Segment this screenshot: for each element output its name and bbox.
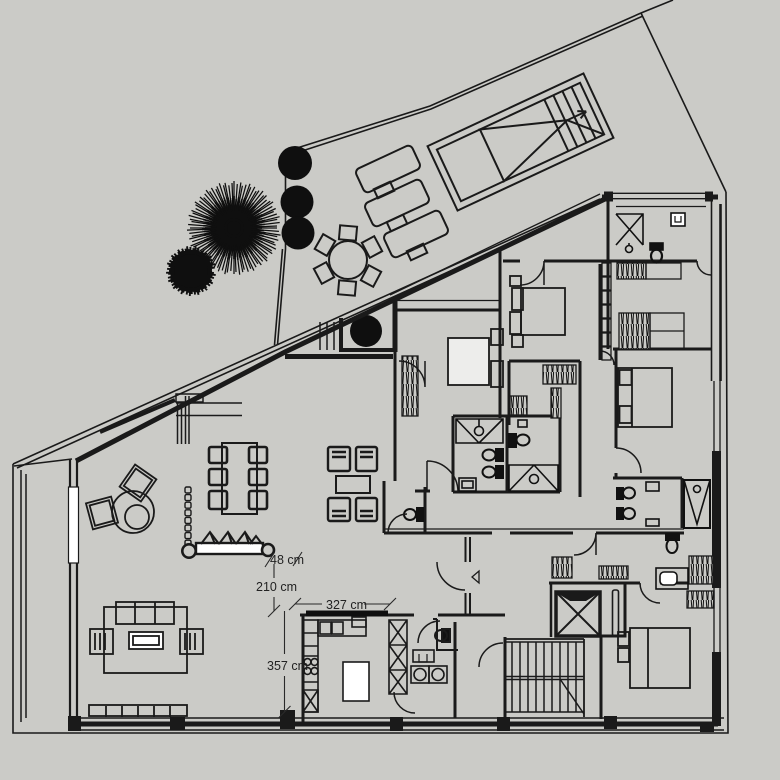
svg-text:48 cm: 48 cm	[270, 553, 304, 567]
svg-text:327 cm: 327 cm	[326, 598, 367, 612]
svg-text:210 cm: 210 cm	[256, 580, 297, 594]
svg-text:357 cm: 357 cm	[267, 659, 308, 673]
